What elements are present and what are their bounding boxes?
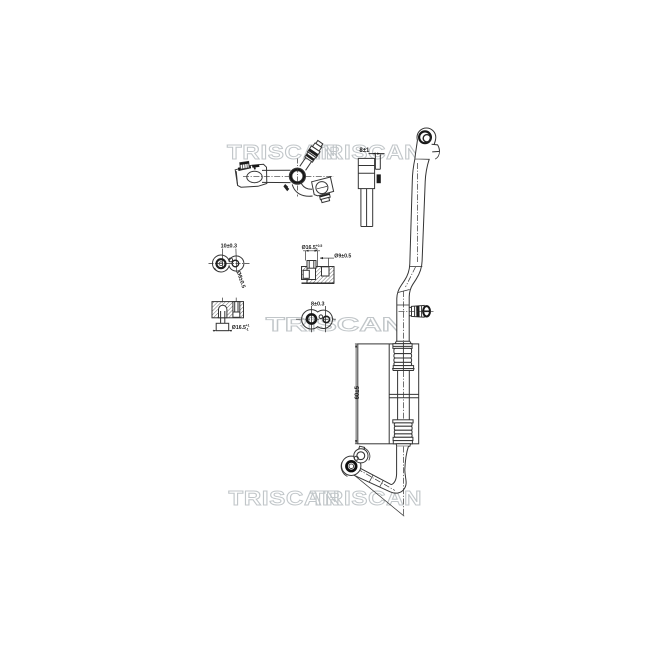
svg-text:Ø16.5: Ø16.5 (232, 325, 246, 331)
svg-text:Ø16.5: Ø16.5 (302, 245, 316, 251)
svg-text:TRISCAN: TRISCAN (266, 313, 405, 335)
svg-text:8±0.3: 8±0.3 (311, 301, 324, 307)
svg-text:10±0.3: 10±0.3 (221, 244, 237, 250)
svg-text:Ø9±0.5: Ø9±0.5 (334, 254, 351, 260)
svg-text:-1: -1 (246, 327, 249, 331)
svg-text:TRISCAN: TRISCAN (311, 487, 423, 510)
svg-text:60±5: 60±5 (355, 385, 361, 399)
svg-text:8±1: 8±1 (359, 148, 370, 154)
